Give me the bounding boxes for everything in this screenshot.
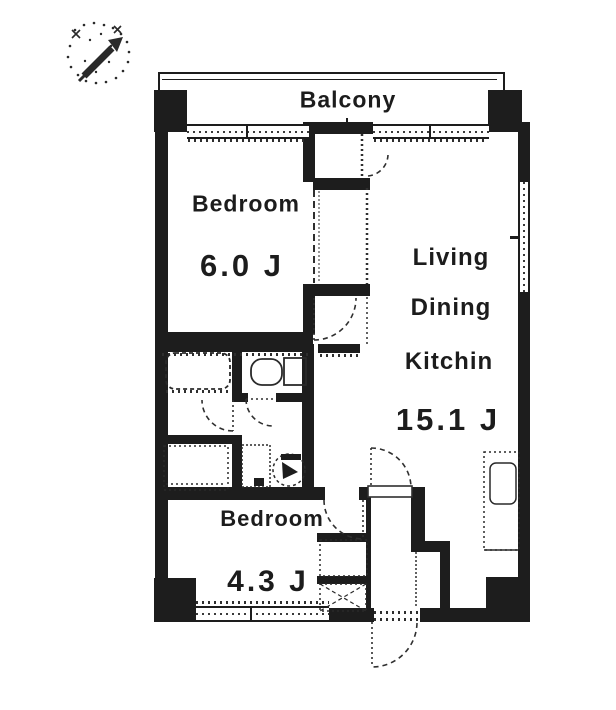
wall-hatch — [166, 390, 230, 393]
wall-right-upper — [518, 122, 530, 184]
door-swing-icon — [202, 400, 233, 431]
pillar-bottom-left — [154, 578, 196, 622]
wall-hatch — [188, 139, 308, 142]
wall-step-v — [440, 541, 450, 622]
wall-washblock-right — [302, 346, 314, 497]
entrance-threshold — [374, 618, 418, 621]
toilet-icon — [251, 359, 282, 385]
window-mullion — [429, 124, 431, 139]
closet2-box — [320, 540, 367, 576]
wall-bedroom2-top — [155, 487, 325, 500]
wall-toilet-bottom-a — [232, 393, 248, 402]
water-heater-mark — [282, 462, 298, 479]
door-swing-icon — [246, 399, 273, 426]
kitchen-counter — [484, 452, 519, 550]
balcony-label: Balcony — [300, 87, 396, 114]
entrance-threshold — [374, 611, 418, 614]
floorplan-canvas: Balcony Bedroom 6.0 J Living Dining Kitc… — [0, 0, 616, 710]
pillar-top-right — [488, 90, 522, 132]
wall-hall-left — [366, 497, 371, 608]
bathtub-icon — [166, 353, 230, 389]
kitchen-label: Kitchin — [405, 348, 493, 376]
dining-label: Dining — [411, 294, 492, 322]
wall-hatch — [162, 353, 310, 356]
bedroom1-area: 6.0 J — [200, 248, 284, 284]
north-arrow-icon — [67, 22, 131, 85]
wall-closet-divider1 — [313, 178, 370, 190]
balcony-inner-line — [162, 79, 497, 80]
wall-closet-left-bottom — [303, 284, 315, 334]
bedroom2-area: 4.3 J — [227, 565, 309, 599]
kitchen-sink-icon — [490, 463, 516, 504]
wall-bottom-mid — [328, 608, 374, 622]
window-mullion — [246, 124, 248, 139]
wall-hatch — [196, 601, 329, 604]
wall-living-door-right — [411, 487, 425, 547]
water-heater-unit — [281, 454, 301, 460]
bedroom2-label: Bedroom — [220, 506, 324, 532]
pillar-bottom-right — [486, 577, 530, 622]
bedroom1-label: Bedroom — [192, 191, 300, 218]
wall-wash-divider — [160, 435, 236, 444]
window-icon — [196, 606, 329, 622]
window-mullion — [250, 606, 252, 622]
ldk-area: 15.1 J — [396, 402, 500, 438]
wall-closet-divider2 — [313, 284, 370, 296]
window-icon — [518, 182, 530, 292]
door-swing-icon — [371, 448, 411, 487]
living-label: Living — [413, 244, 490, 272]
washing-machine-icon — [242, 445, 270, 487]
wall-hatch — [320, 354, 360, 357]
vanity-icon — [164, 446, 228, 490]
window-icon — [187, 124, 309, 139]
wall-toilet-bottom-b — [276, 393, 314, 402]
wall-left — [155, 122, 168, 622]
door-swing-icon — [314, 298, 356, 340]
water-heater-icon — [273, 454, 305, 486]
wall-right-lower — [518, 290, 530, 622]
wall-nook-bottom — [318, 344, 360, 353]
entrance-door-swing — [372, 623, 417, 667]
wall-closet2-divider — [317, 576, 367, 584]
wall-hatch — [374, 139, 488, 142]
wall-closet2-top — [317, 533, 367, 542]
window-icon — [373, 124, 489, 139]
door-swing-icon — [368, 155, 388, 176]
door-leaf-living — [368, 486, 412, 497]
washing-machine-tap — [254, 478, 264, 486]
